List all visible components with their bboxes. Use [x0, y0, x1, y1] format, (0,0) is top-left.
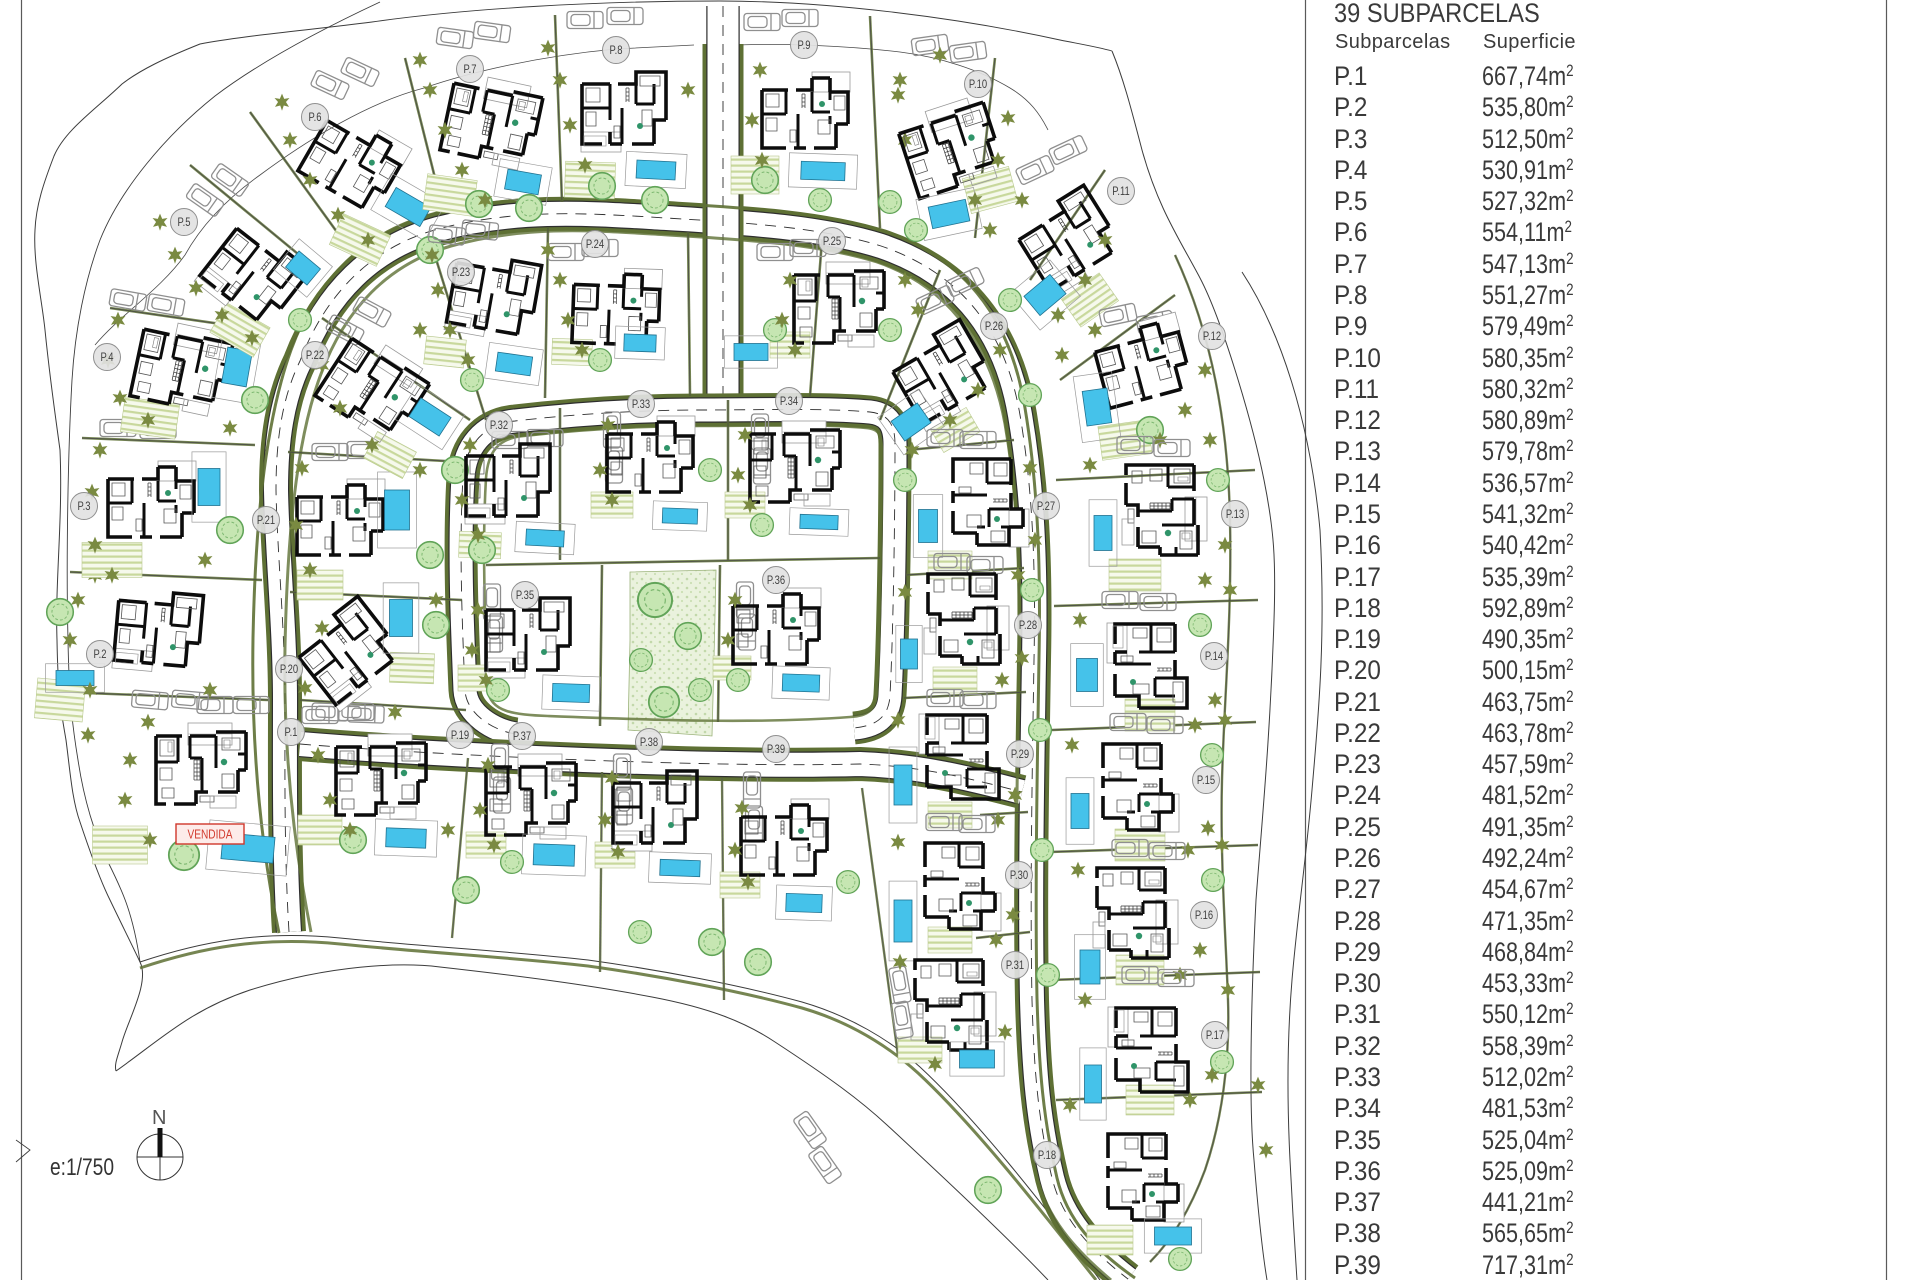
svg-text:P.22: P.22: [306, 349, 324, 362]
svg-text:P.8: P.8: [610, 44, 623, 57]
svg-text:P.35: P.35: [516, 589, 534, 602]
svg-text:P.21: P.21: [257, 514, 275, 527]
svg-text:VENDIDA: VENDIDA: [187, 827, 232, 841]
svg-text:P.25: P.25: [823, 235, 841, 248]
svg-text:P.1: P.1: [285, 726, 298, 739]
svg-text:P.39: P.39: [767, 743, 785, 756]
svg-text:P.24: P.24: [586, 238, 604, 251]
svg-text:P.12: P.12: [1203, 330, 1221, 343]
svg-text:P.31: P.31: [1006, 959, 1024, 972]
svg-text:P.38: P.38: [640, 736, 658, 749]
svg-text:P.34: P.34: [780, 395, 798, 408]
svg-text:P.29: P.29: [1011, 748, 1029, 761]
svg-text:P.5: P.5: [178, 216, 191, 229]
svg-text:P.15: P.15: [1197, 774, 1215, 787]
svg-text:P.11: P.11: [1112, 185, 1130, 198]
svg-text:P.14: P.14: [1205, 650, 1223, 663]
svg-text:N: N: [152, 1107, 166, 1129]
svg-text:P.26: P.26: [985, 320, 1003, 333]
svg-text:P.28: P.28: [1019, 619, 1037, 632]
svg-text:P.18: P.18: [1038, 1149, 1056, 1162]
svg-text:P.2: P.2: [94, 648, 107, 661]
svg-text:P.3: P.3: [78, 500, 91, 513]
svg-text:P.6: P.6: [309, 111, 322, 124]
svg-text:P.13: P.13: [1226, 508, 1244, 521]
svg-text:P.9: P.9: [798, 39, 811, 52]
svg-text:P.36: P.36: [767, 574, 785, 587]
svg-text:P.4: P.4: [101, 351, 114, 364]
svg-text:P.17: P.17: [1206, 1029, 1224, 1042]
svg-text:P.20: P.20: [280, 663, 298, 676]
svg-text:e:1/750: e:1/750: [50, 1153, 114, 1181]
svg-text:P.37: P.37: [513, 730, 531, 743]
svg-text:P.30: P.30: [1010, 869, 1028, 882]
svg-text:P.10: P.10: [969, 78, 987, 91]
svg-text:P.23: P.23: [452, 266, 470, 279]
svg-text:P.27: P.27: [1037, 500, 1055, 513]
svg-text:P.32: P.32: [490, 419, 508, 432]
svg-text:P.16: P.16: [1195, 909, 1213, 922]
svg-text:P.33: P.33: [632, 398, 650, 411]
svg-text:P.7: P.7: [464, 63, 477, 76]
svg-text:P.19: P.19: [451, 729, 469, 742]
